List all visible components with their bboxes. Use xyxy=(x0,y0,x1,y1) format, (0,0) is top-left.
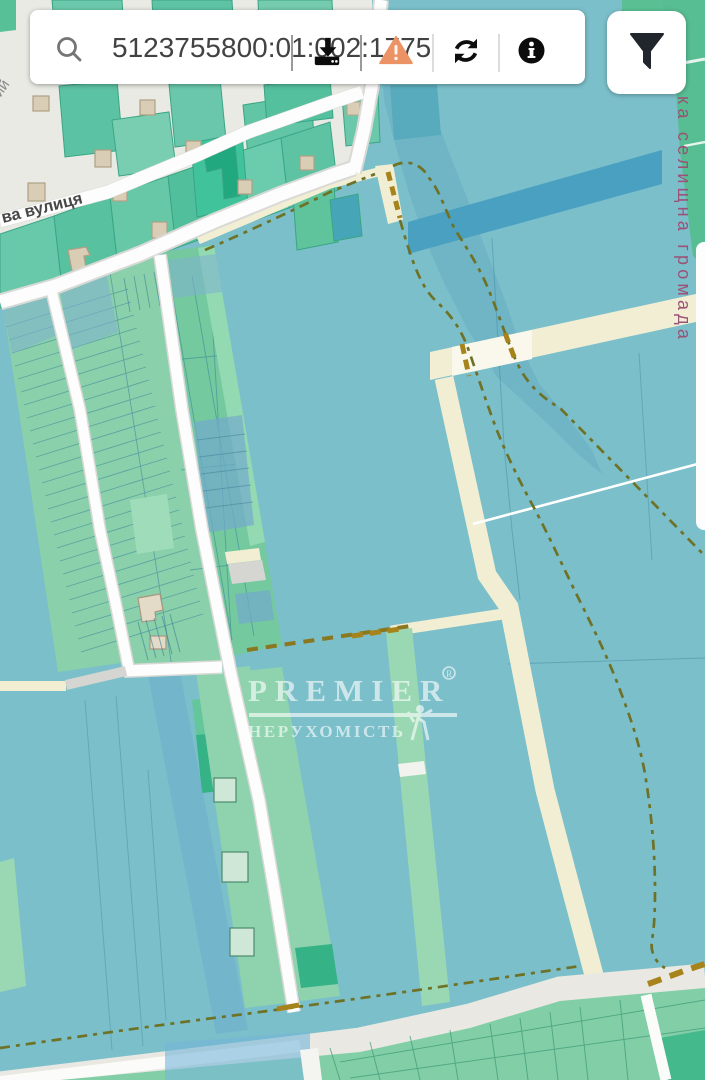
svg-text:НЕРУХОМІСТЬ: НЕРУХОМІСТЬ xyxy=(248,722,406,741)
svg-text:R: R xyxy=(446,669,452,679)
svg-text:PREMIER: PREMIER xyxy=(248,673,450,708)
svg-text:ка селищна громада: ка селищна громада xyxy=(674,96,694,343)
